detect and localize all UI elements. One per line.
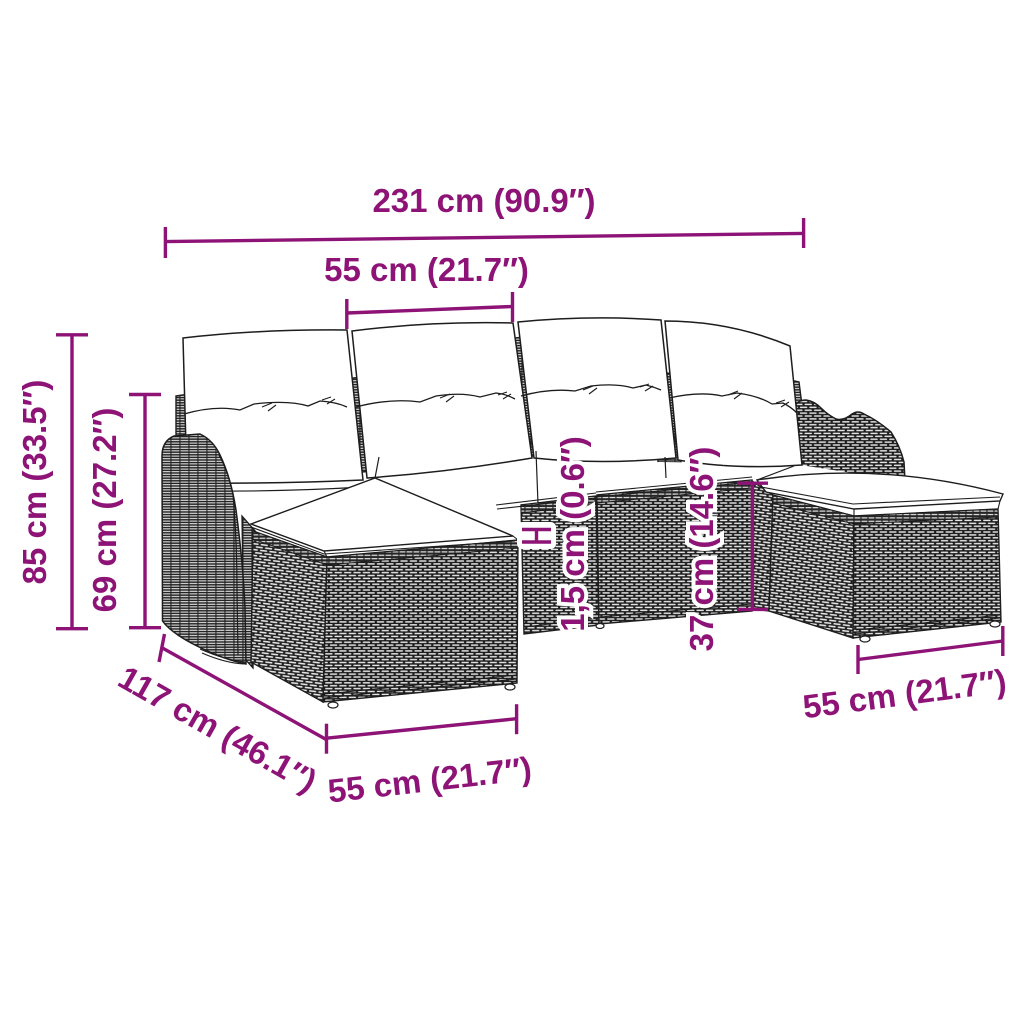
- svg-text:55 cm (21.7″): 55 cm (21.7″): [324, 251, 529, 288]
- svg-text:69 cm (27.2″): 69 cm (27.2″): [86, 408, 123, 613]
- svg-text:85 cm (33.5″): 85 cm (33.5″): [16, 380, 53, 585]
- svg-text:37 cm (14.6″): 37 cm (14.6″): [683, 447, 720, 652]
- svg-text:231 cm (90.9″): 231 cm (90.9″): [372, 182, 595, 219]
- svg-text:1,5 cm (0.6″): 1,5 cm (0.6″): [554, 436, 591, 632]
